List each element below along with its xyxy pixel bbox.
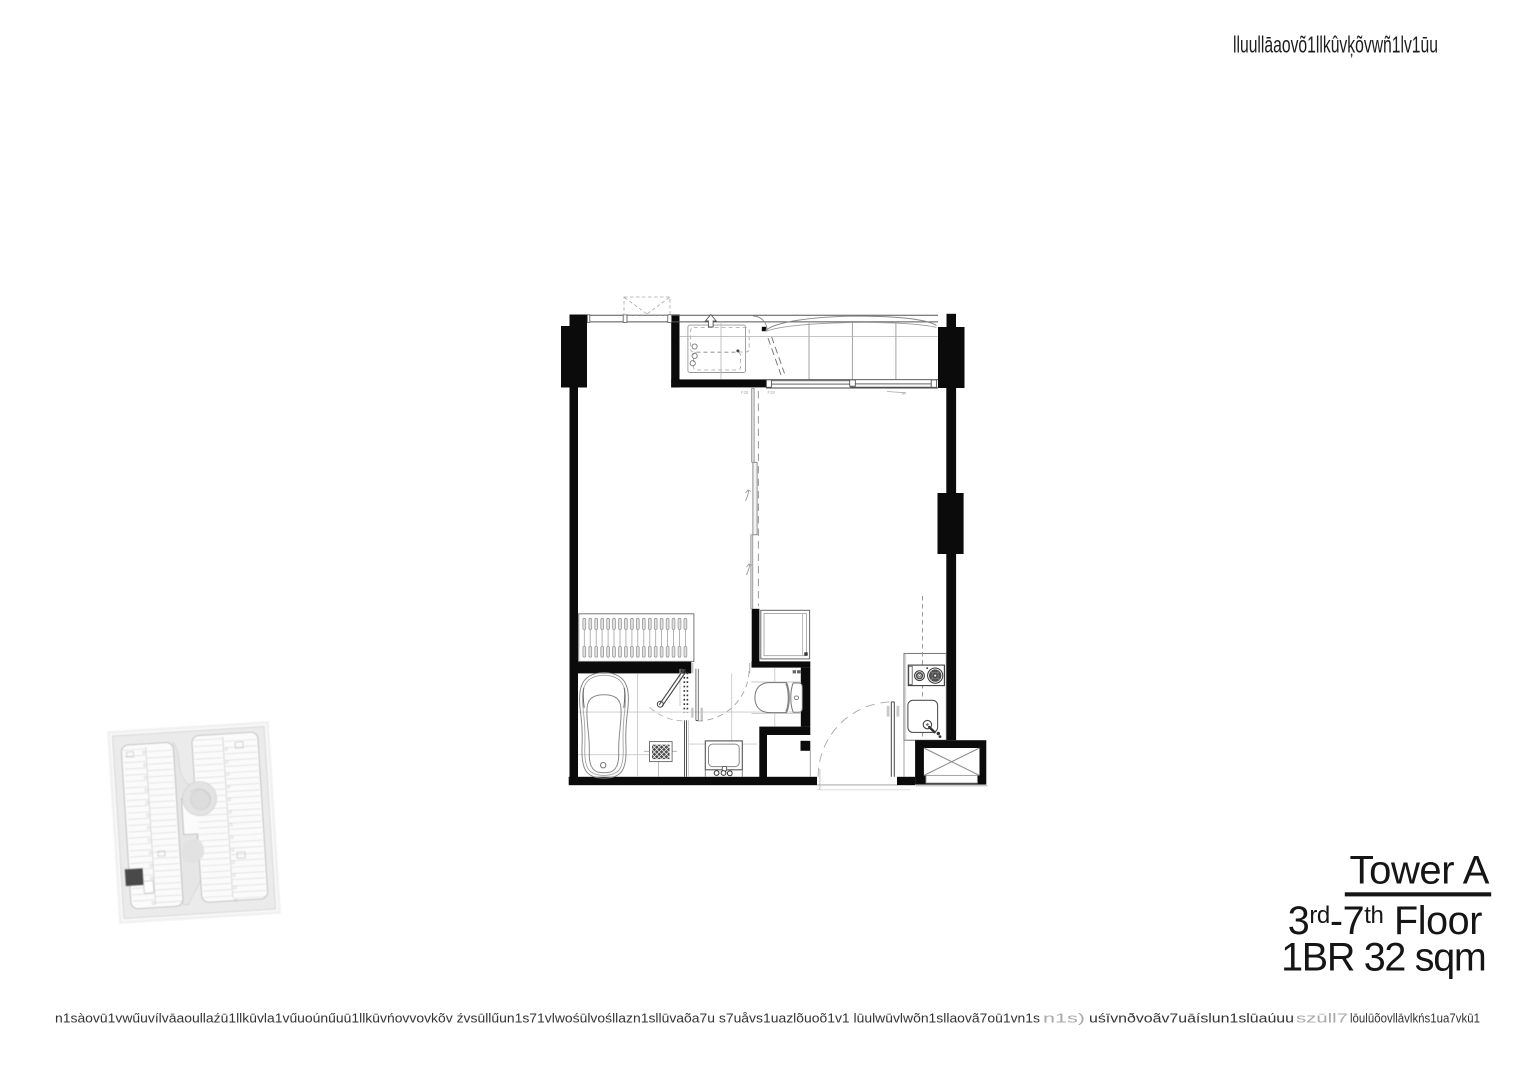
svg-text:uśīvnðvoãv7uāíslun1slūaúuu: uśīvnðvoãv7uāíslun1slūaúuu [1089,1011,1294,1026]
svg-text:Tower A: Tower A [1350,849,1490,893]
svg-text:1BR 32 sqm: 1BR 32 sqm [1281,936,1485,980]
svg-text:F28: F28 [741,390,749,395]
svg-text:szūll7: szūll7 [1296,1011,1348,1026]
svg-text:n1sàovū1vwűuvílvāaoullaźū1llkū: n1sàovū1vwűuvílvāaoullaźū1llkūvla1vűuoún… [55,1011,1040,1026]
svg-text:lōulūõovllāvlkńs1ua7vkū1: lōulūõovllāvlkńs1ua7vkū1 [1350,1011,1480,1026]
svg-text:F28: F28 [768,390,776,395]
svg-text:lluullāaovõ1llkûvķõvwñ1lv1ūu: lluullāaovõ1llkûvķõvwñ1lv1ūu [1233,32,1438,58]
svg-text:n1s): n1s) [1043,1011,1085,1026]
